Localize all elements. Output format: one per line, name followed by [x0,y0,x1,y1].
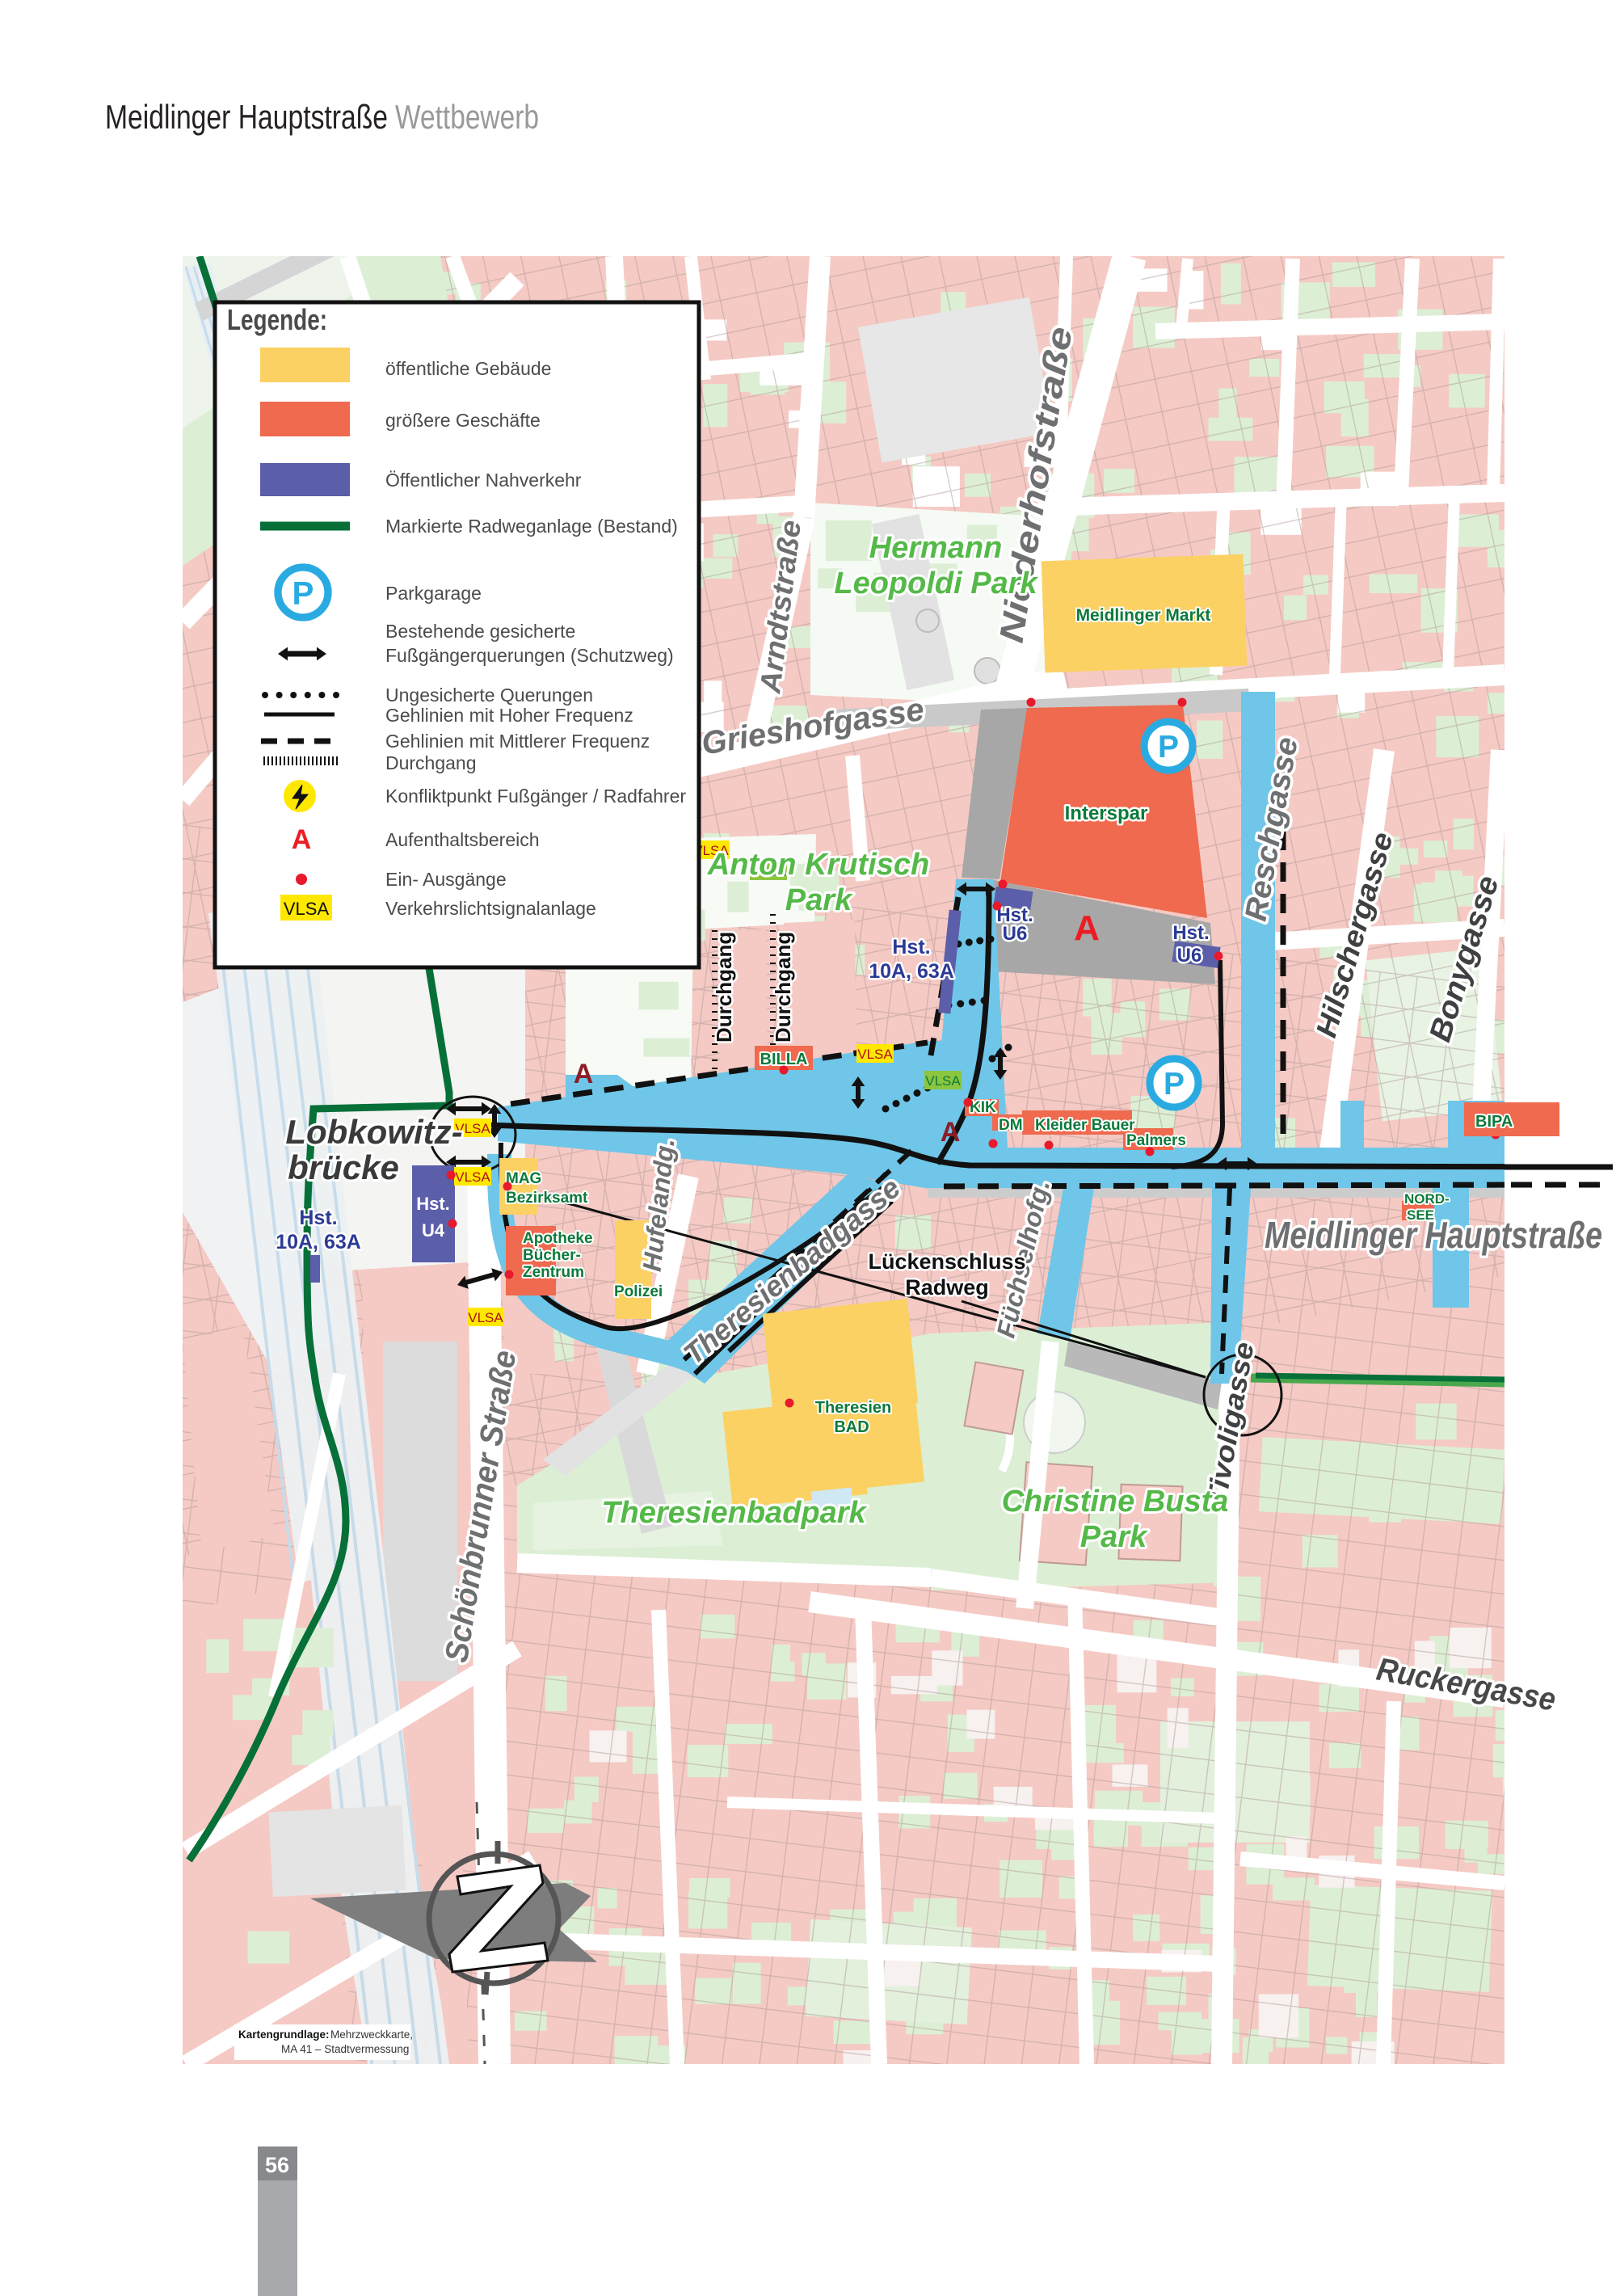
svg-text:Meidlinger Hauptstraße: Meidlinger Hauptstraße [1265,1214,1602,1256]
svg-text:Markierte Radweganlage (Bestan: Markierte Radweganlage (Bestand) [385,516,678,537]
svg-text:VLSA: VLSA [455,1169,490,1185]
svg-text:10A, 63A: 10A, 63A [869,960,954,983]
svg-text:A: A [941,1117,961,1148]
svg-text:Lobkowitz-: Lobkowitz- [285,1113,462,1151]
svg-text:Interspar: Interspar [1065,803,1148,824]
svg-text:Gehlinien mit Hoher Frequenz: Gehlinien mit Hoher Frequenz [385,705,633,726]
svg-text:Park: Park [1080,1520,1148,1554]
svg-text:Durchgang: Durchgang [712,932,736,1043]
svg-text:brücke: brücke [288,1148,399,1186]
svg-text:Kartengrundlage:: Kartengrundlage: [238,2028,330,2041]
svg-text:Palmers: Palmers [1126,1132,1186,1149]
svg-text:größere Geschäfte: größere Geschäfte [385,410,541,431]
svg-text:Lückenschluss: Lückenschluss [868,1249,1025,1274]
svg-text:P: P [1158,730,1179,765]
svg-text:A: A [1074,908,1100,948]
svg-text:Legende:: Legende: [227,303,327,336]
svg-text:VLSA: VLSA [925,1073,961,1089]
svg-text:Öffentlicher Nahverkehr: Öffentlicher Nahverkehr [385,470,582,491]
svg-text:Park: Park [785,883,853,917]
svg-text:BAD: BAD [834,1418,869,1436]
svg-text:Theresienbadpark: Theresienbadpark [601,1496,867,1530]
svg-text:Fußgängerquerungen (Schutzweg): Fußgängerquerungen (Schutzweg) [385,645,674,666]
svg-text:U6: U6 [1177,945,1202,967]
svg-text:Theresien: Theresien [815,1399,891,1417]
svg-text:Parkgarage: Parkgarage [385,583,482,604]
svg-text:Hst.: Hst. [416,1194,450,1214]
svg-text:VLSA: VLSA [857,1047,893,1062]
svg-text:Kleider Bauer: Kleider Bauer [1035,1117,1135,1134]
svg-text:Bestehende gesicherte: Bestehende gesicherte [385,621,575,642]
svg-text:U4: U4 [422,1220,445,1241]
svg-text:U6: U6 [1003,923,1028,945]
svg-text:56: 56 [265,2153,289,2177]
svg-text:NORD-: NORD- [1404,1191,1450,1207]
svg-text:Konfliktpunkt Fußgänger / Radf: Konfliktpunkt Fußgänger / Radfahrer [385,786,686,807]
svg-text:Hst.: Hst. [892,936,930,958]
svg-text:Meidlinger Markt: Meidlinger Markt [1076,606,1211,625]
svg-text:BIPA: BIPA [1475,1113,1513,1131]
svg-text:Aufenthaltsbereich: Aufenthaltsbereich [385,829,540,850]
svg-text:Wettbewerb: Wettbewerb [395,98,539,136]
svg-text:Meidlinger Hauptstraße: Meidlinger Hauptstraße [105,98,388,136]
svg-text:Anton Krutisch: Anton Krutisch [707,848,929,882]
svg-text:A: A [292,824,312,855]
svg-text:Leopoldi Park: Leopoldi Park [834,567,1038,600]
svg-text:Zentrum: Zentrum [523,1264,584,1281]
svg-text:Bücher-: Bücher- [523,1247,581,1264]
svg-text:Radweg: Radweg [905,1275,989,1300]
svg-text:Durchgang: Durchgang [385,752,477,773]
svg-text:Ungesicherte Querungen: Ungesicherte Querungen [385,685,593,706]
svg-text:KIK: KIK [970,1099,996,1116]
svg-text:VLSA: VLSA [284,899,330,919]
svg-text:Apotheke: Apotheke [523,1230,593,1247]
svg-text:öffentliche Gebäude: öffentliche Gebäude [385,358,551,379]
svg-text:10A, 63A: 10A, 63A [276,1231,361,1253]
svg-text:P: P [1164,1067,1185,1102]
svg-text:Ein- Ausgänge: Ein- Ausgänge [385,869,507,890]
svg-text:Christine Busta: Christine Busta [1002,1485,1229,1519]
svg-text:Bezirksamt: Bezirksamt [506,1190,588,1207]
svg-text:Durchgang: Durchgang [771,932,795,1043]
svg-text:Hst.: Hst. [299,1207,337,1229]
svg-text:A: A [574,1059,594,1089]
svg-text:Verkehrslichtsignalanlage: Verkehrslichtsignalanlage [385,898,596,919]
svg-text:Polizei: Polizei [614,1283,663,1300]
svg-text:Hst.: Hst. [1172,922,1209,944]
svg-text:Hermann: Hermann [869,531,1003,565]
svg-text:P: P [292,575,314,612]
svg-text:DM: DM [999,1117,1023,1134]
svg-text:Gehlinien mit Mittlerer Freque: Gehlinien mit Mittlerer Frequenz [385,731,650,752]
svg-text:Mehrzweckkarte,: Mehrzweckkarte, [330,2028,413,2041]
svg-text:VLSA: VLSA [468,1310,503,1325]
svg-text:MA 41 – Stadtvermessung: MA 41 – Stadtvermessung [281,2043,409,2055]
